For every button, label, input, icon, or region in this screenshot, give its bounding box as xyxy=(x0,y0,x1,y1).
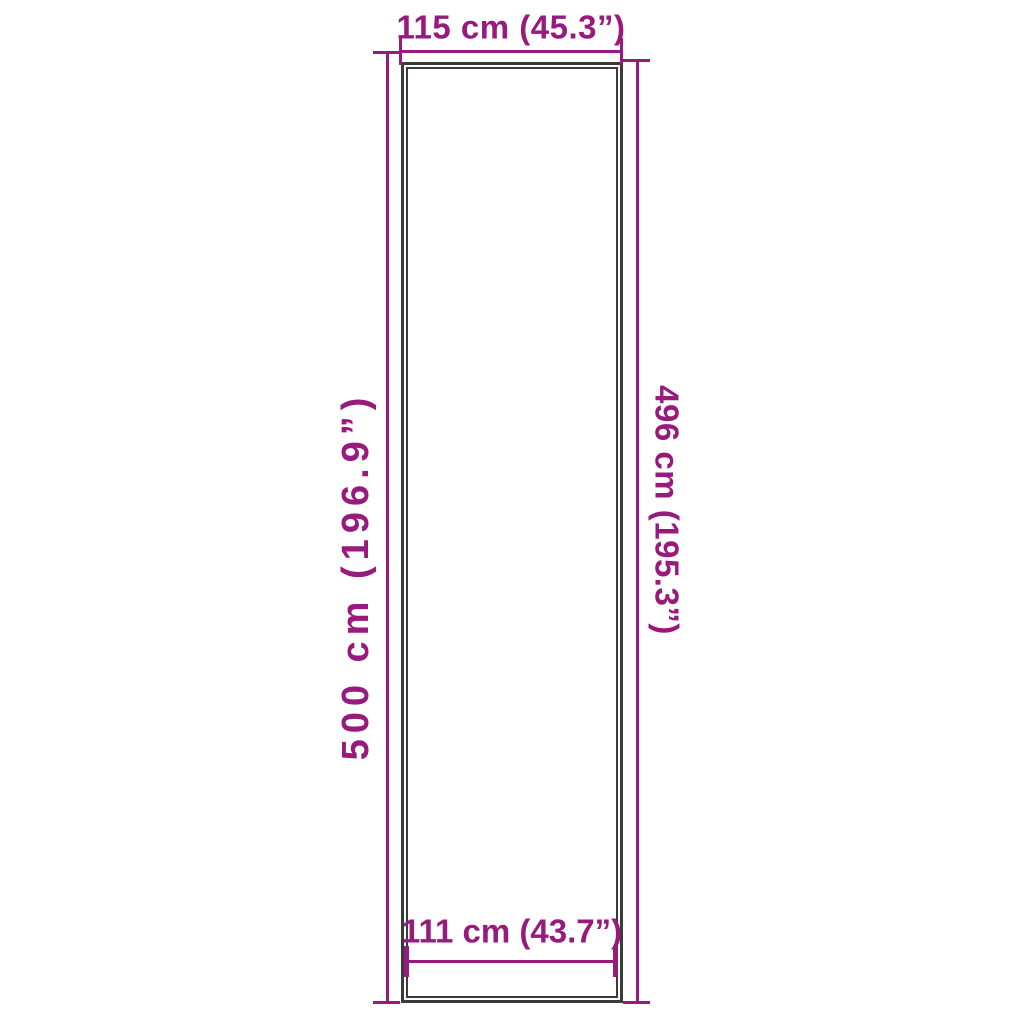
left-height-label: 500 cm (196.9”) xyxy=(337,392,375,761)
right-height-dimension-top-tick xyxy=(623,59,650,62)
top-width-label: 115 cm (45.3”) xyxy=(397,11,626,44)
dimension-diagram: 115 cm (45.3”) 500 cm (196.9”) 496 cm (1… xyxy=(0,0,1024,1024)
bottom-inner-width-dimension-right-tick xyxy=(613,946,618,977)
right-height-dimension-bottom-tick xyxy=(623,1001,650,1004)
top-width-dimension-line xyxy=(400,50,623,53)
product-outline-inner-border xyxy=(406,67,618,998)
right-height-label: 496 cm (195.3”) xyxy=(651,385,684,635)
right-height-dimension-line xyxy=(636,59,639,1004)
left-height-dimension-top-tick xyxy=(373,51,400,54)
bottom-inner-width-label: 111 cm (43.7”) xyxy=(402,915,622,948)
bottom-inner-width-dimension-line xyxy=(407,960,617,963)
left-height-dimension-line xyxy=(386,51,389,1004)
left-height-dimension-bottom-tick xyxy=(373,1001,400,1004)
bottom-inner-width-dimension-left-tick xyxy=(404,946,409,977)
product-outline xyxy=(401,62,623,1003)
